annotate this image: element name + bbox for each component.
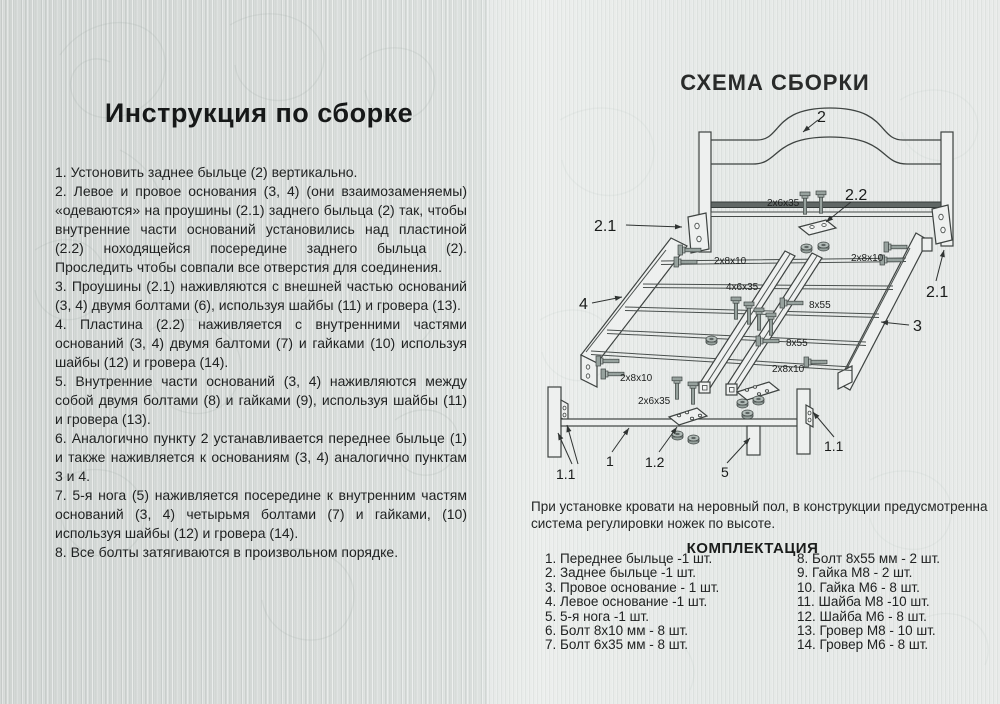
- callout-4: 4: [579, 296, 588, 313]
- kit-item: 3. Провое основание - 1 шт.: [545, 581, 795, 595]
- kit-item: 8. Болт 8x55 мм - 2 шт.: [797, 552, 997, 566]
- label-8x55-upper: 8x55: [809, 300, 831, 311]
- kit-item: 13. Гровер М8 - 10 шт.: [797, 624, 997, 638]
- callout-2-1-right: 2.1: [926, 284, 948, 301]
- leveling-note: При установке кровати на неровный пол, в…: [531, 498, 989, 532]
- label-2x6x35-bottom: 2x6x35: [638, 396, 671, 407]
- front-rail-part1: [548, 382, 813, 457]
- label-8x55-lower: 8x55: [786, 338, 808, 349]
- label-2x6x35-top: 2x6x35: [767, 198, 800, 209]
- callout-1: 1: [606, 453, 614, 469]
- kit-item: 1. Переднее быльце -1 шт.: [545, 552, 795, 566]
- callout-2-1-left: 2.1: [594, 218, 616, 235]
- kit-item: 5. 5-я нога -1 шт.: [545, 610, 795, 624]
- callout-2: 2: [817, 109, 826, 126]
- instruction-sheet-page: Инструкция по сборке 1. Устоновить задне…: [0, 0, 1000, 704]
- kit-item: 14. Гровер М6 - 8 шт.: [797, 638, 997, 652]
- kit-item: 2. Заднее быльце -1 шт.: [545, 566, 795, 580]
- label-2x8x10-right-top: 2x8x10: [851, 253, 884, 264]
- kit-list-left: 1. Переднее быльце -1 шт. 2. Заднее быль…: [545, 552, 795, 653]
- kit-item: 7. Болт 6x35 мм - 8 шт.: [545, 638, 795, 652]
- kit-item: 6. Болт 8x10 мм - 8 шт.: [545, 624, 795, 638]
- headboard-back: [688, 108, 953, 253]
- callout-1-2: 1.2: [645, 454, 665, 470]
- kit-item: 12. Шайба М6 - 8 шт.: [797, 610, 997, 624]
- callout-3: 3: [913, 318, 922, 335]
- label-2x8x10-left-bottom: 2x8x10: [620, 373, 653, 384]
- kit-item: 11. Шайба М8 -10 шт.: [797, 595, 997, 609]
- kit-item: 9. Гайка М8 - 2 шт.: [797, 566, 997, 580]
- callout-1-1-left: 1.1: [556, 466, 576, 482]
- label-4x6x35: 4x6x35: [726, 282, 759, 293]
- callout-2-2: 2.2: [845, 187, 867, 204]
- callout-5: 5: [721, 464, 729, 480]
- kit-item: 10. Гайка М6 - 8 шт.: [797, 581, 997, 595]
- label-2x8x10-right-bottom: 2x8x10: [772, 364, 805, 375]
- callout-1-1-right: 1.1: [824, 438, 844, 454]
- label-2x8x10-left-top: 2x8x10: [714, 256, 747, 267]
- kit-item: 4. Левое основание -1 шт.: [545, 595, 795, 609]
- kit-list-right: 8. Болт 8x55 мм - 2 шт. 9. Гайка М8 - 2 …: [797, 552, 997, 653]
